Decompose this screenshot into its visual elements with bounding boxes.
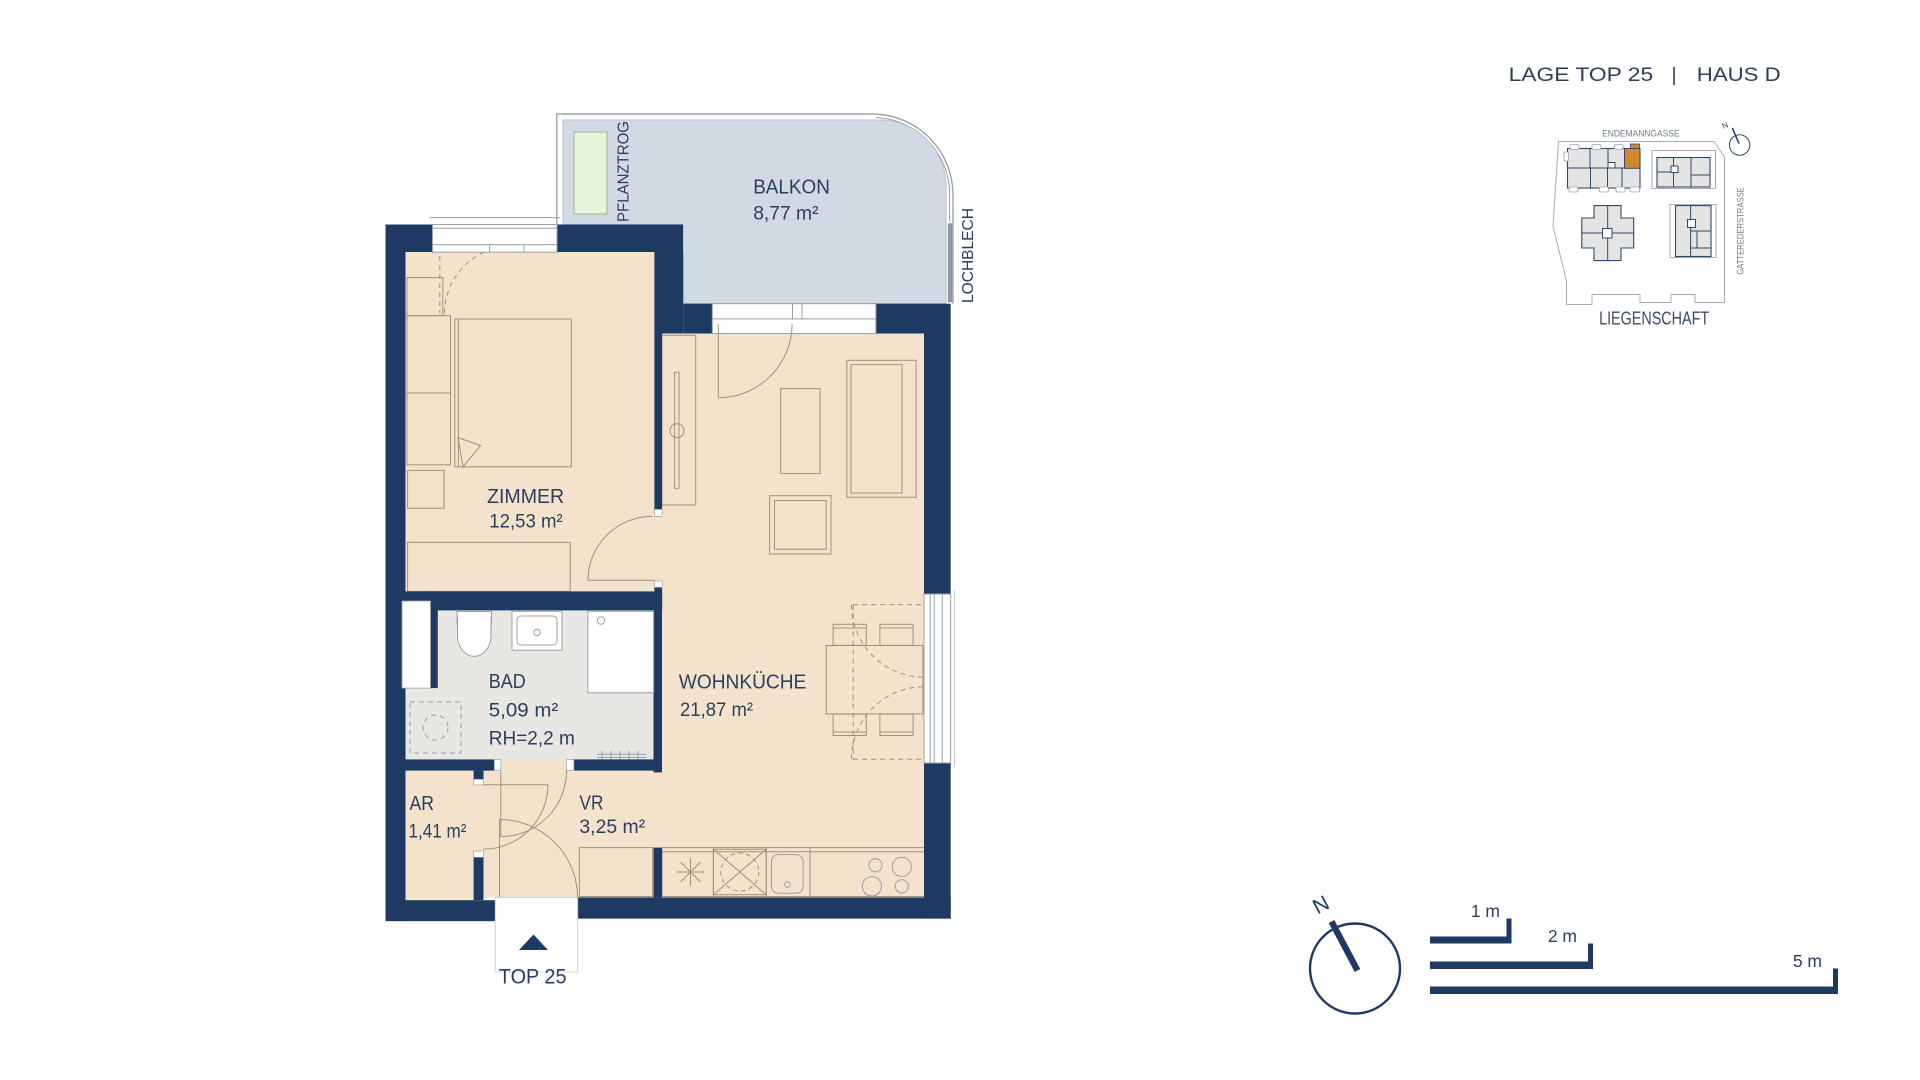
svg-text:12,53 m²: 12,53 m² xyxy=(489,511,563,533)
svg-text:LOCHBLECH: LOCHBLECH xyxy=(960,208,977,303)
svg-text:LAGE TOP 25: LAGE TOP 25 xyxy=(1509,64,1654,86)
svg-text:2 m: 2 m xyxy=(1548,926,1577,946)
svg-text:PFLANZTROG: PFLANZTROG xyxy=(616,121,633,222)
svg-text:ENDEMANNGASSE: ENDEMANNGASSE xyxy=(1602,128,1679,138)
svg-text:LIEGENSCHAFT: LIEGENSCHAFT xyxy=(1599,309,1709,329)
svg-text:1 m: 1 m xyxy=(1471,901,1500,921)
svg-text:8,77 m²: 8,77 m² xyxy=(753,203,819,225)
svg-text:5 m: 5 m xyxy=(1793,951,1822,971)
svg-text:ZIMMER: ZIMMER xyxy=(487,485,564,508)
svg-text:GATTEREDERSTRASSE: GATTEREDERSTRASSE xyxy=(1736,187,1746,275)
svg-text:WOHNKÜCHE: WOHNKÜCHE xyxy=(679,671,807,694)
svg-text:BAD: BAD xyxy=(489,670,526,693)
svg-text:|: | xyxy=(1671,64,1676,86)
svg-text:HAUS D: HAUS D xyxy=(1697,64,1781,86)
svg-text:5,09 m²: 5,09 m² xyxy=(489,700,559,722)
svg-text:VR: VR xyxy=(579,791,603,814)
svg-text:RH=2,2 m: RH=2,2 m xyxy=(489,728,575,750)
svg-text:1,41 m²: 1,41 m² xyxy=(409,821,467,843)
svg-text:AR: AR xyxy=(410,792,435,815)
svg-text:BALKON: BALKON xyxy=(753,177,830,199)
svg-text:3,25 m²: 3,25 m² xyxy=(579,816,645,838)
svg-text:TOP 25: TOP 25 xyxy=(499,966,567,989)
svg-text:21,87 m²: 21,87 m² xyxy=(680,699,754,721)
